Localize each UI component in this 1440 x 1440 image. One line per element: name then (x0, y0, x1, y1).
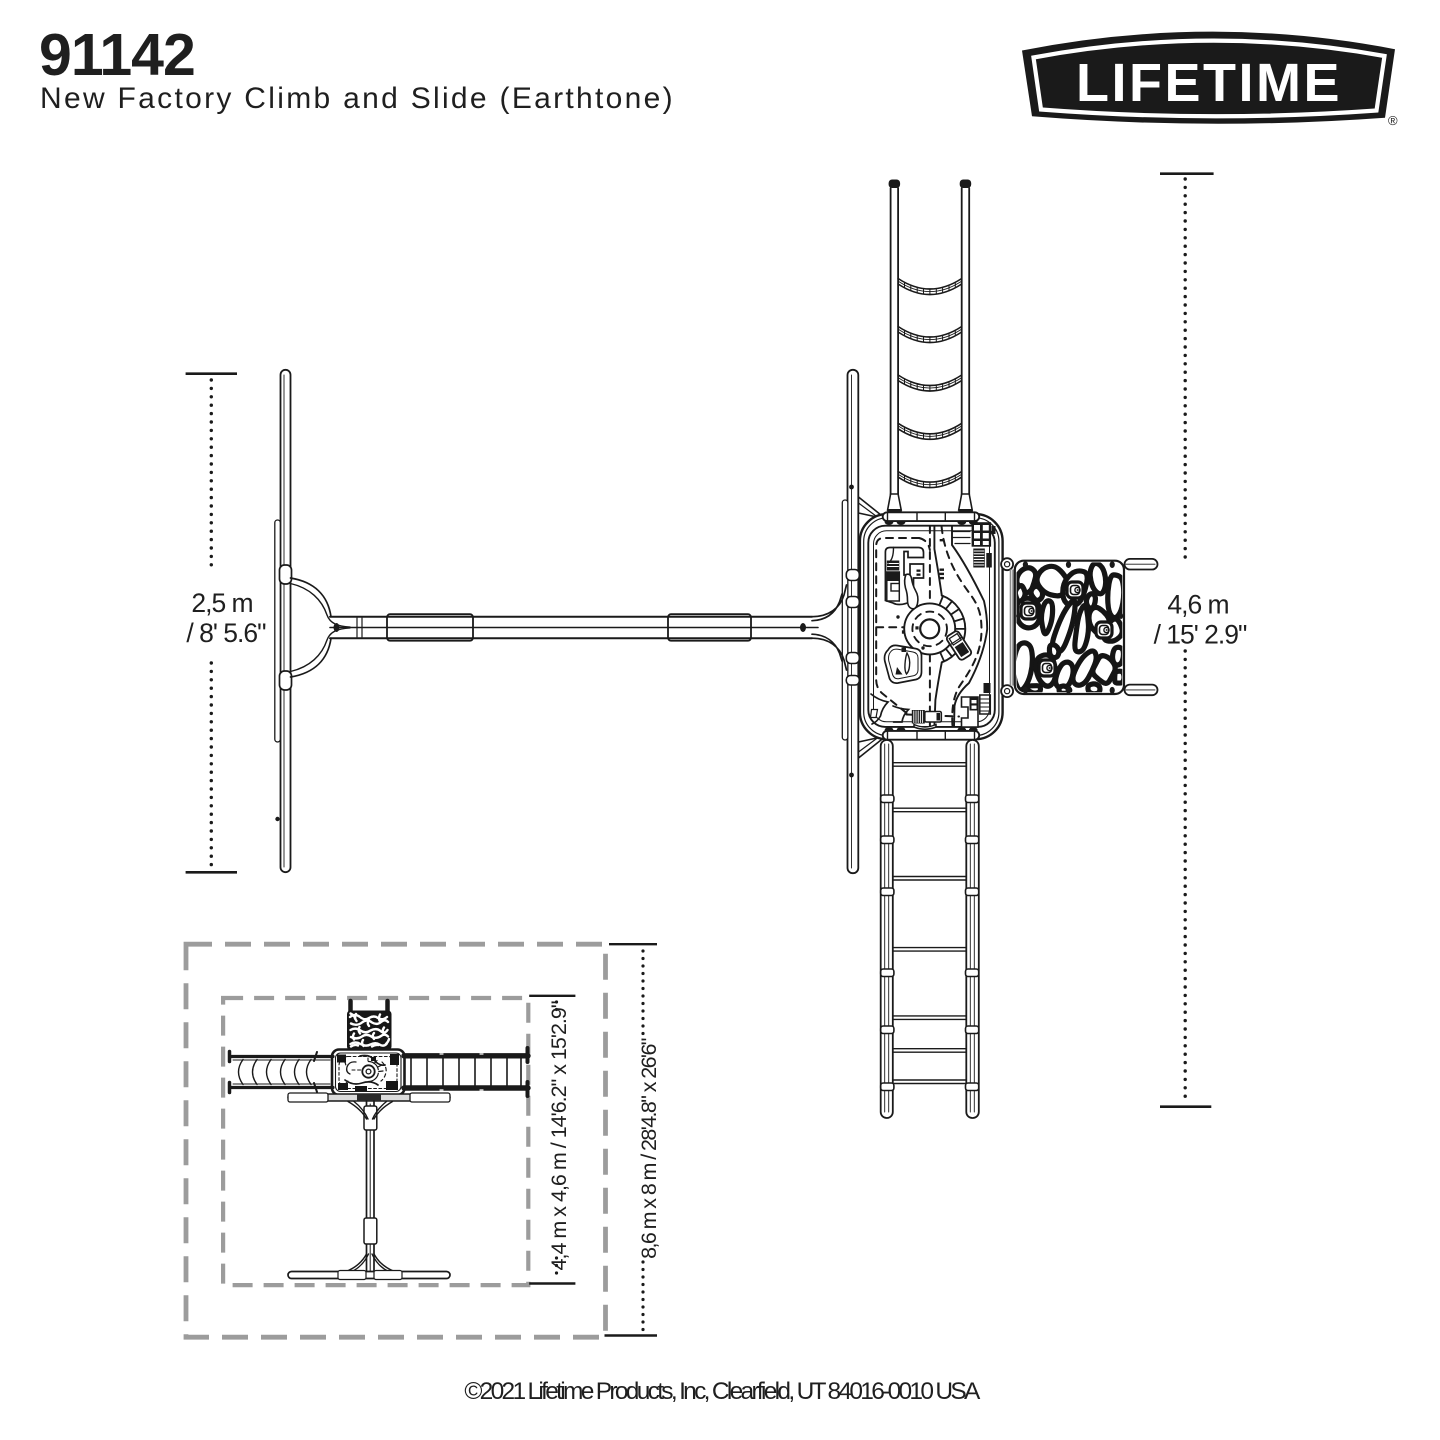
svg-text:New Factory Climb and Slide (E: New Factory Climb and Slide (Earthtone) (40, 82, 675, 115)
svg-text:/ 15' 2.9": / 15' 2.9" (1154, 620, 1247, 650)
svg-text:2,5 m: 2,5 m (191, 588, 252, 618)
svg-text:®: ® (1388, 113, 1398, 128)
svg-text:LIFETIME: LIFETIME (1076, 53, 1342, 113)
svg-text:4,4 m x 4,6 m / 14'6.2" x 15'2: 4,4 m x 4,6 m / 14'6.2" x 15'2.9" (547, 1001, 571, 1270)
svg-text:8,6 m x 8 m / 28'4.8" x 26'6": 8,6 m x 8 m / 28'4.8" x 26'6" (637, 1038, 661, 1259)
svg-text:91142: 91142 (39, 22, 195, 88)
svg-text:©2021 Lifetime Products, Inc,: ©2021 Lifetime Products, Inc, Clearfield… (464, 1378, 981, 1405)
svg-text:4,6 m: 4,6 m (1167, 590, 1228, 620)
svg-text:/ 8' 5.6": / 8' 5.6" (186, 618, 266, 648)
